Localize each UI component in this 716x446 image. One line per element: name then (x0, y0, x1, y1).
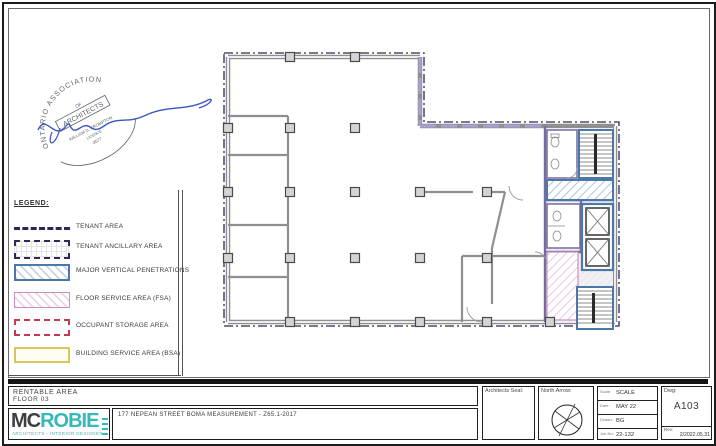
info-value: BG (616, 418, 624, 424)
legend-label: MAJOR VERTICAL PENETRATIONS (76, 267, 189, 274)
logo-subtitle: ARCHITECTS - INTERIOR DESIGNERS (12, 431, 106, 436)
washroom-north (547, 130, 577, 178)
drawing-number: A103 (662, 401, 711, 412)
north-arrow-icon (540, 396, 594, 440)
info-label: Scale: (600, 389, 611, 394)
info-row-scale: Scale: SCALE (598, 387, 657, 401)
dwg-label: Dwg: (664, 388, 677, 394)
washroom-south (547, 204, 580, 248)
firm-logo-box: MCROBIE ARCHITECTS - INTERIOR DESIGNERS (8, 408, 110, 440)
info-label: Date: (600, 403, 610, 408)
project-address: 177 NEPEAN STREET BOMA MEASUREMENT - Z65… (118, 412, 477, 418)
bsa-swatch (14, 347, 70, 363)
sheet-title-box: RENTABLE AREA FLOOR 03 (8, 386, 478, 406)
rev-value: 2/2022.05.31 (680, 432, 710, 438)
titleblock-separator-bar (8, 379, 708, 384)
drawing-number-box: Dwg: A103 Rev: 2/2022.05.31 (661, 386, 712, 440)
rev-label: Rev: (664, 427, 673, 432)
info-row-date: Date: MAY 22 (598, 401, 657, 415)
fsa-swatch (14, 292, 70, 308)
info-label: Job No: (600, 431, 614, 436)
column-grid (224, 53, 555, 327)
north-arrow-label: North Arrow: (541, 388, 572, 394)
sheet-subtitle: FLOOR 03 (13, 396, 477, 403)
legend-item-tenant-area: TENANT AREA (14, 220, 178, 240)
tenant-ancillary-swatch (14, 240, 70, 259)
legend-label: FLOOR SERVICE AREA (FSA) (76, 295, 171, 302)
logo-stripes-decoration (102, 415, 108, 435)
door-swings (467, 186, 547, 322)
stair-north (579, 130, 613, 178)
north-arrow-box: North Arrow: (538, 386, 594, 440)
legend-item-tenant-ancillary: TENANT ANCILLARY AREA (14, 240, 178, 260)
legend-item-building-service-area: BUILDING SERVICE AREA (BSA) (14, 347, 178, 367)
legend-label: OCCUPANT STORAGE AREA (76, 322, 169, 329)
architects-seal-box: Architects Seal: (482, 386, 535, 440)
legend-label: BUILDING SERVICE AREA (BSA) (76, 350, 180, 357)
info-row-job: Job No: 22-132 (598, 429, 657, 442)
architects-seal-label: Architects Seal: (485, 388, 523, 394)
legend-item-major-vertical-penetrations: MAJOR VERTICAL PENETRATIONS (14, 264, 178, 284)
stair-south (577, 287, 613, 329)
legend: LEGEND: TENANT AREA TENANT ANCILLARY ARE… (14, 200, 178, 372)
legend-label: TENANT AREA (76, 223, 123, 230)
fsa-corridor (547, 252, 578, 320)
legend-item-floor-service-area: FLOOR SERVICE AREA (FSA) (14, 292, 178, 312)
interior-partitions (228, 116, 545, 322)
project-address-box: 177 NEPEAN STREET BOMA MEASUREMENT - Z65… (112, 408, 478, 440)
floor-plan (183, 8, 713, 378)
info-value: 22-132 (616, 432, 634, 438)
info-value: SCALE (616, 390, 635, 396)
legend-item-occupant-storage: OCCUPANT STORAGE AREA (14, 319, 178, 339)
legend-panel-bottom-line (8, 375, 181, 376)
firm-logo: MCROBIE (11, 410, 98, 433)
penetrations-swatch (14, 264, 70, 281)
drawing-sheet: ONTARIO ASSOCIATION OF ARCHITECTS WILLIA… (0, 0, 716, 446)
legend-label: TENANT ANCILLARY AREA (76, 243, 163, 250)
logo-robie: ROBIE (40, 410, 98, 432)
storage-swatch (14, 319, 70, 336)
logo-mc: MC (11, 410, 40, 432)
info-value: MAY 22 (616, 404, 636, 410)
penetration-band (547, 180, 613, 200)
building-core (545, 126, 613, 329)
sheet-title: RENTABLE AREA (13, 389, 477, 396)
window-walls (420, 57, 545, 126)
legend-title: LEGEND: (14, 200, 49, 207)
elevator-shafts (582, 204, 613, 270)
info-row-drawn: Drawn: BG (598, 415, 657, 429)
info-label: Drawn: (600, 417, 613, 422)
drawing-info-table: Scale: SCALE Date: MAY 22 Drawn: BG Job … (597, 386, 658, 440)
tenant-area-swatch (14, 227, 70, 230)
